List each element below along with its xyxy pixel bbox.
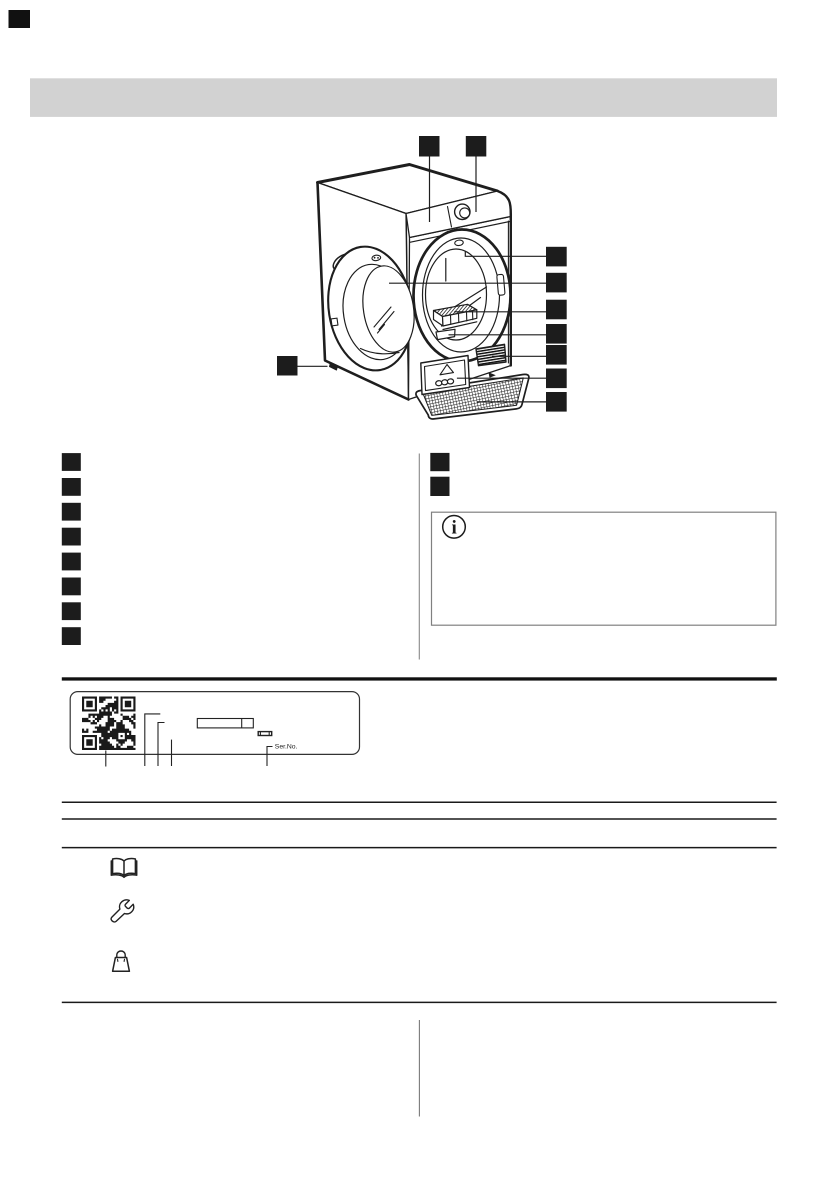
svg-text:i: i xyxy=(452,518,457,539)
svg-text:Ser.No.: Ser.No. xyxy=(275,744,298,751)
